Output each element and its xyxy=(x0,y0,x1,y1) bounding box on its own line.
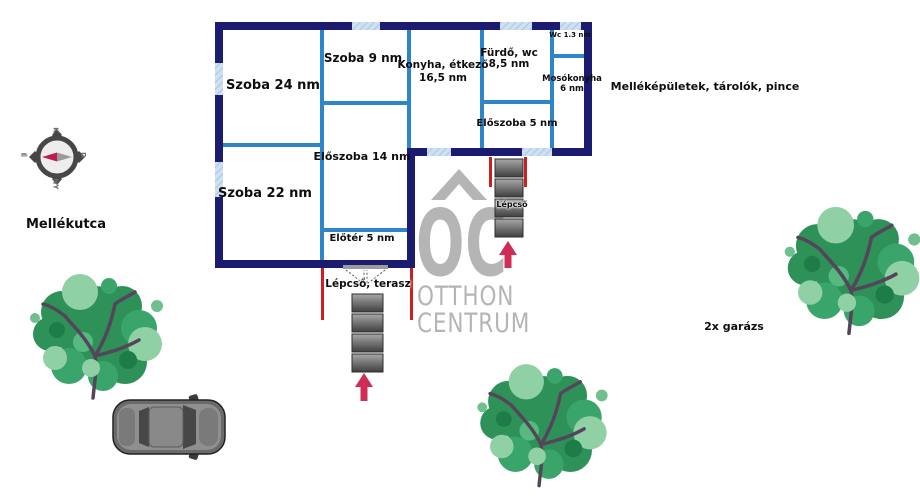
floor-plan-page: OC OTTHON CENTRUM xyxy=(0,0,920,500)
terrace-stairs xyxy=(321,268,413,372)
entrance-door xyxy=(343,265,388,284)
side-stairs-arrow-icon xyxy=(499,241,517,268)
entrance-arrow-icon xyxy=(355,373,373,401)
tree-left xyxy=(30,274,163,398)
interior-walls xyxy=(223,30,584,260)
plan-graphics xyxy=(0,0,920,500)
logo-roof-icon xyxy=(431,169,487,200)
car xyxy=(113,394,225,461)
side-stairs xyxy=(489,157,527,237)
tree-right xyxy=(785,207,920,333)
compass-icon xyxy=(29,129,85,185)
tree-bottom xyxy=(477,364,607,486)
